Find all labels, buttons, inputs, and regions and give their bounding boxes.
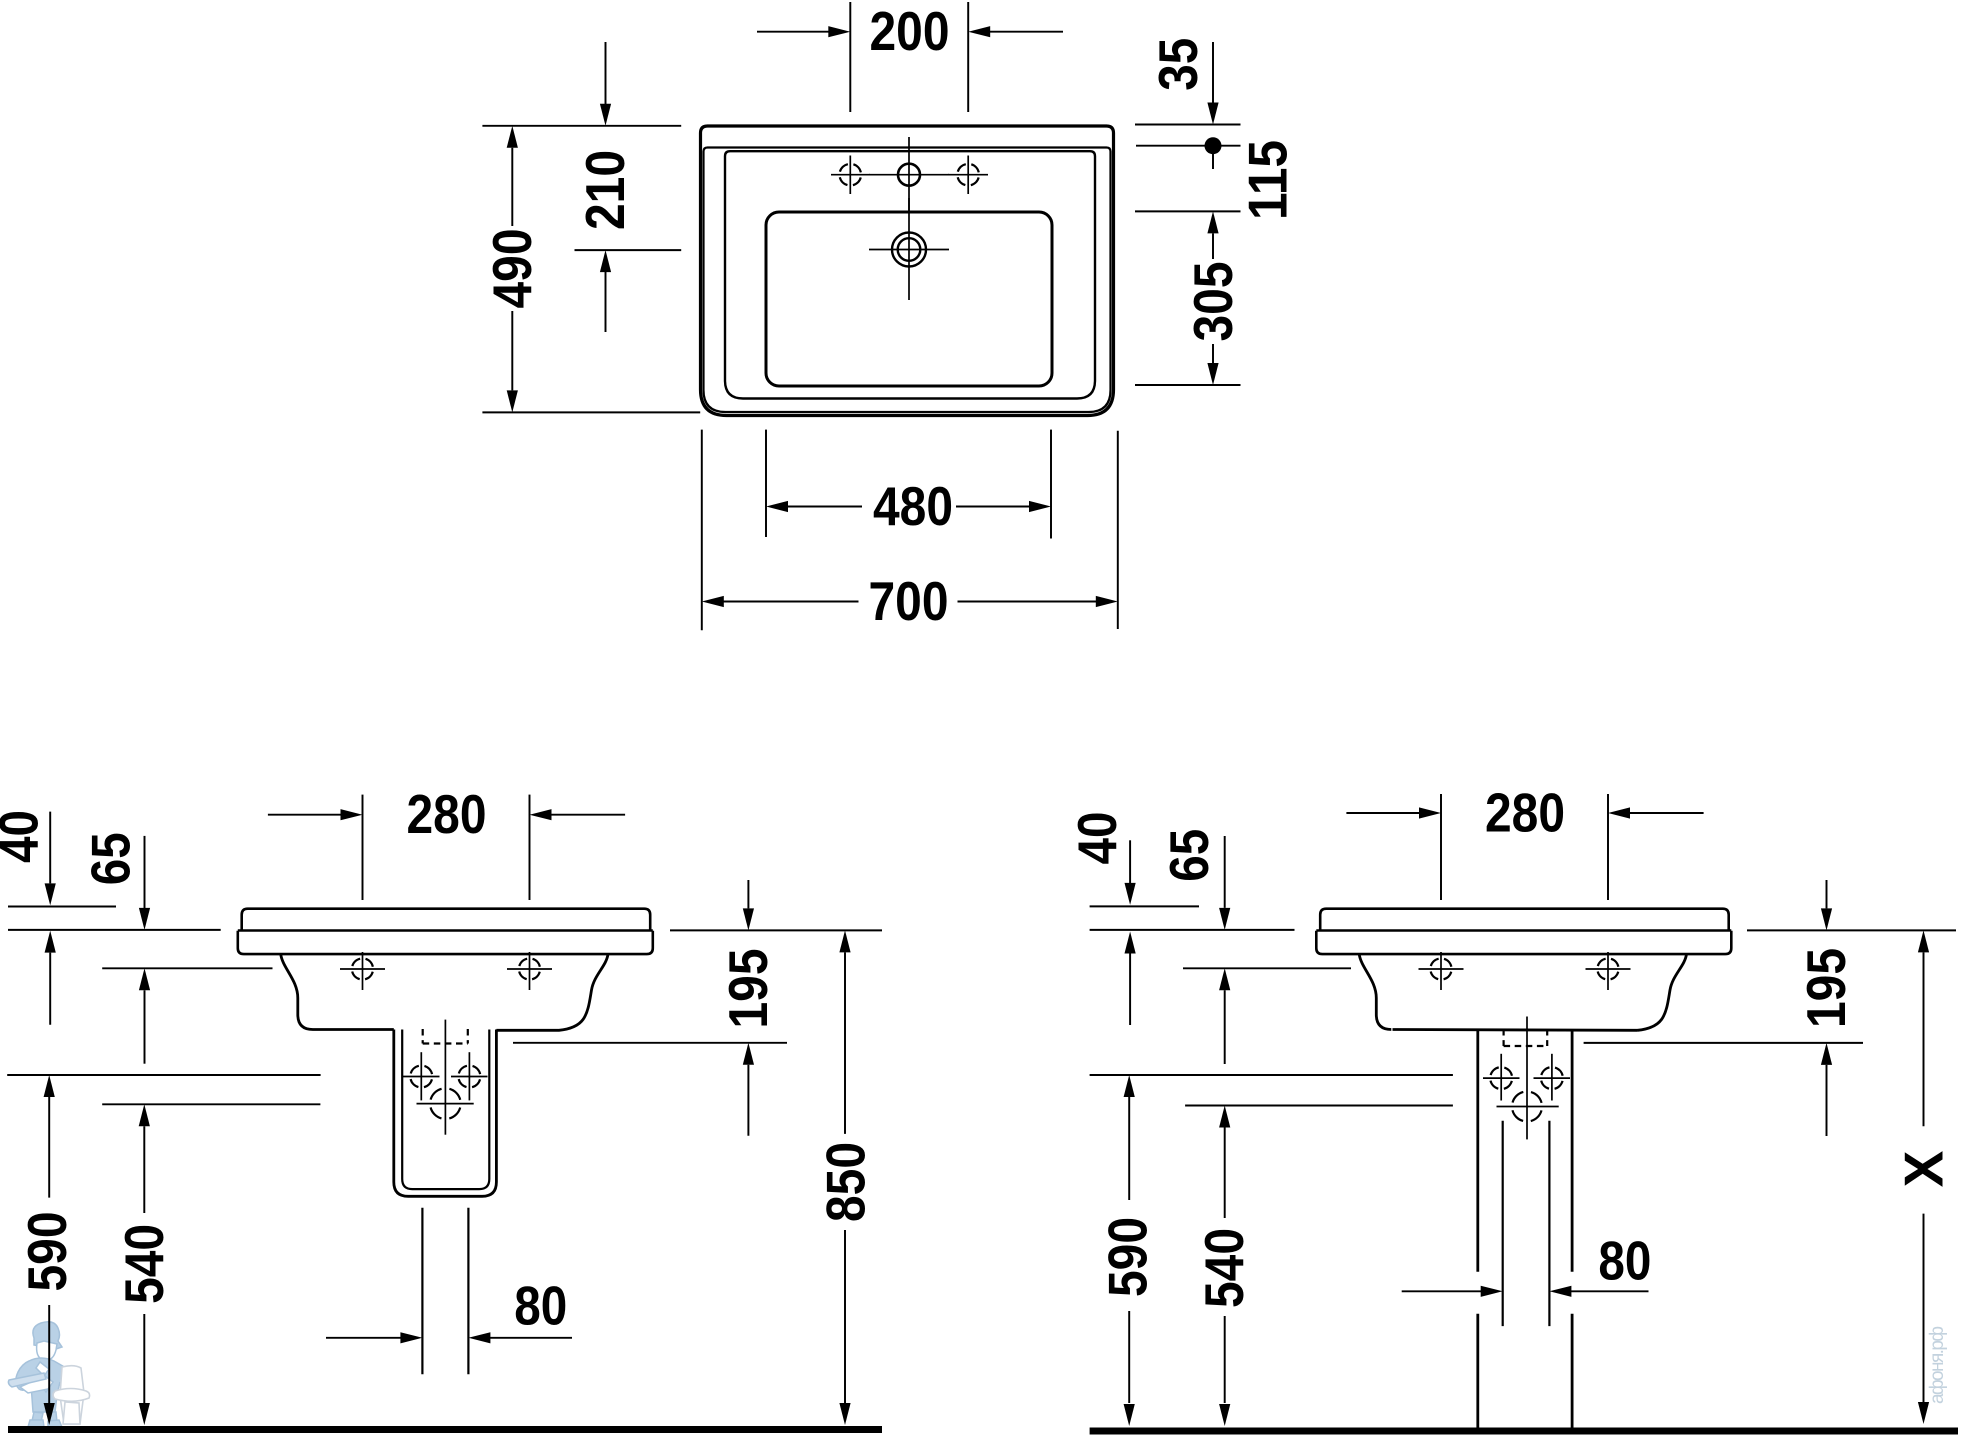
svg-text:700: 700 — [869, 570, 949, 632]
svg-text:280: 280 — [407, 783, 487, 845]
svg-text:афоня.рф: афоня.рф — [1927, 1326, 1948, 1404]
svg-text:65: 65 — [1158, 829, 1220, 882]
svg-text:40: 40 — [0, 810, 50, 863]
svg-text:540: 540 — [113, 1224, 175, 1304]
svg-text:590: 590 — [1097, 1217, 1159, 1297]
svg-text:490: 490 — [481, 229, 543, 309]
svg-text:80: 80 — [514, 1274, 567, 1336]
svg-text:X: X — [1893, 1150, 1955, 1187]
svg-text:850: 850 — [815, 1142, 877, 1222]
svg-text:590: 590 — [16, 1212, 78, 1292]
svg-text:65: 65 — [80, 832, 142, 885]
svg-text:305: 305 — [1182, 262, 1244, 342]
svg-text:540: 540 — [1193, 1228, 1255, 1308]
svg-text:195: 195 — [1795, 948, 1857, 1028]
svg-text:40: 40 — [1066, 812, 1128, 865]
svg-text:35: 35 — [1147, 38, 1209, 91]
svg-text:480: 480 — [873, 475, 953, 537]
svg-text:115: 115 — [1237, 140, 1299, 220]
svg-text:280: 280 — [1485, 782, 1565, 844]
svg-text:210: 210 — [574, 150, 636, 230]
svg-text:200: 200 — [870, 0, 950, 62]
svg-text:80: 80 — [1598, 1229, 1651, 1291]
svg-text:195: 195 — [717, 949, 779, 1029]
